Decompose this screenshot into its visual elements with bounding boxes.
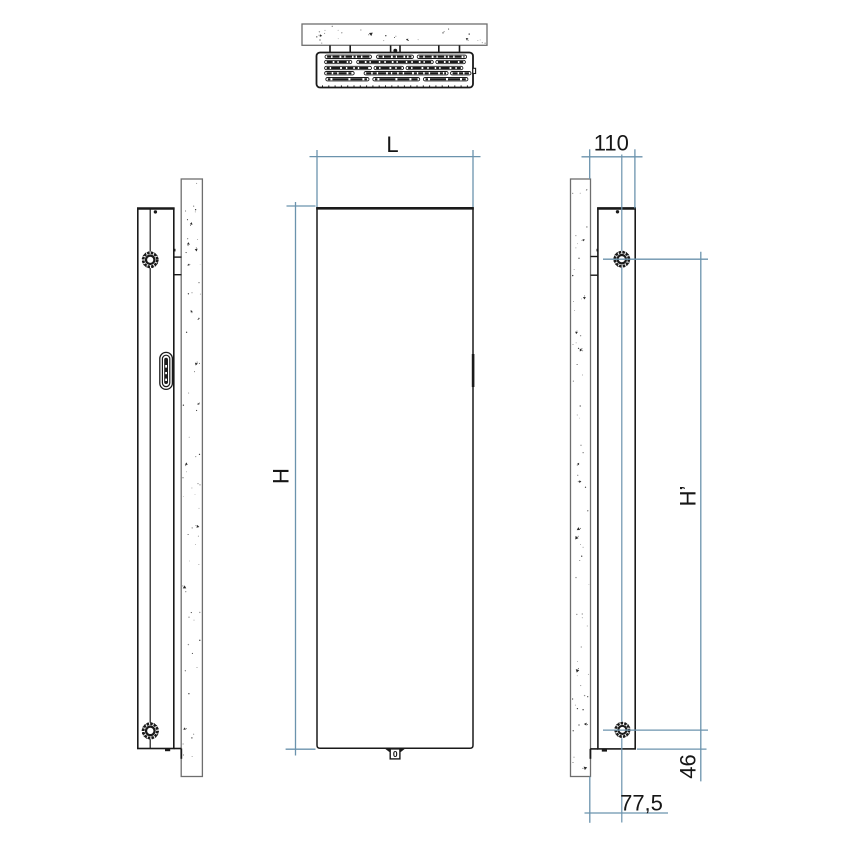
svg-text:46: 46: [675, 754, 700, 778]
svg-text:110: 110: [594, 131, 629, 156]
svg-text:77,5: 77,5: [620, 791, 663, 816]
svg-text:0: 0: [393, 749, 398, 759]
svg-text:H: H: [269, 468, 294, 484]
svg-text:L: L: [386, 132, 398, 157]
svg-text:H’: H’: [676, 486, 701, 507]
